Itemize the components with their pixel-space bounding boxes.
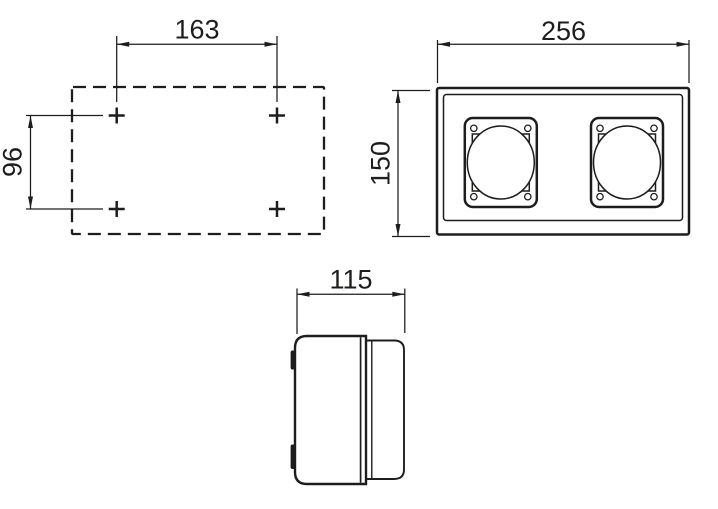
template-dashed-outline (72, 87, 324, 234)
socket-aperture-left (465, 118, 537, 207)
technical-drawing-page: 163 96 (0, 0, 718, 509)
dimension-label: 256 (541, 16, 586, 46)
side-view: 115 (291, 265, 405, 485)
side-back-box (364, 341, 404, 480)
mounting-hole-marker-top-left (109, 108, 125, 124)
dim-hole-spacing-horizontal: 163 (117, 15, 277, 103)
screw-hole (651, 125, 657, 131)
dimension-label: 115 (329, 265, 372, 295)
dimension-label: 96 (0, 147, 28, 177)
screw-hole (471, 194, 477, 200)
dimension-label: 150 (366, 141, 396, 186)
screw-hole (651, 194, 657, 200)
screw-hole (597, 125, 603, 131)
socket-circle-opening (467, 126, 534, 199)
mounting-hole-marker-top-right (269, 108, 285, 124)
screw-hole (525, 194, 531, 200)
dimension-label: 163 (174, 15, 219, 45)
side-front-cover (295, 336, 366, 484)
hinge-tab-top (291, 351, 296, 370)
screw-hole (525, 125, 531, 131)
dim-front-width: 256 (438, 16, 690, 83)
hinge-tab-bottom (291, 445, 296, 470)
socket-circle-opening (594, 126, 661, 199)
mounting-hole-marker-bottom-right (269, 201, 285, 217)
screw-hole (597, 194, 603, 200)
technical-drawing: 163 96 (0, 0, 718, 509)
screw-hole (471, 125, 477, 131)
mounting-hole-marker-bottom-left (109, 201, 125, 217)
dim-front-height: 150 (366, 91, 431, 237)
socket-aperture-right (591, 118, 663, 207)
front-view: 256 150 (366, 16, 690, 237)
dim-hole-spacing-vertical: 96 (0, 116, 103, 210)
dim-depth: 115 (297, 265, 405, 335)
rear-mounting-template-view: 163 96 (0, 15, 324, 235)
